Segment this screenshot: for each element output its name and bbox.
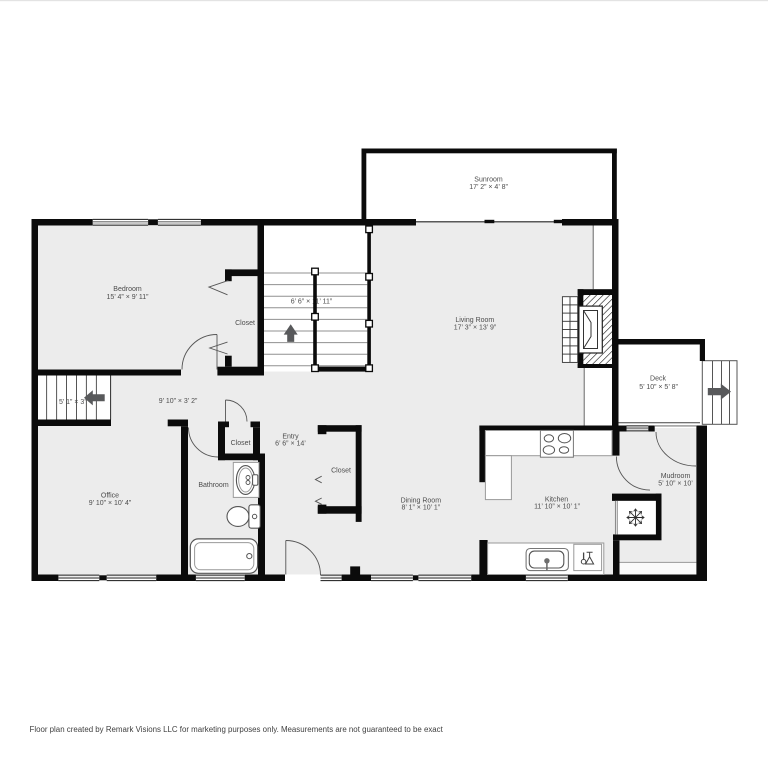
svg-text:17’ 3” × 13’ 9”: 17’ 3” × 13’ 9” <box>454 325 497 332</box>
svg-text:17’ 2” × 4’ 8”: 17’ 2” × 4’ 8” <box>469 184 508 191</box>
svg-text:Closet: Closet <box>331 468 351 475</box>
svg-text:Floor plan created by Remark V: Floor plan created by Remark Visions LLC… <box>30 725 444 734</box>
svg-text:9’ 10” × 3’ 2”: 9’ 10” × 3’ 2” <box>159 398 198 405</box>
svg-text:15’ 4” × 9’ 11”: 15’ 4” × 9’ 11” <box>107 294 150 301</box>
svg-text:Deck: Deck <box>650 376 666 383</box>
svg-text:6’ 6” × 14’: 6’ 6” × 14’ <box>275 440 306 447</box>
svg-text:6’ 6” × 11’ 11”: 6’ 6” × 11’ 11” <box>291 298 333 305</box>
svg-text:Closet: Closet <box>235 320 255 327</box>
svg-text:Office: Office <box>101 492 119 499</box>
svg-text:Closet: Closet <box>231 440 251 447</box>
svg-text:Mudroom: Mudroom <box>661 473 691 480</box>
svg-text:Bedroom: Bedroom <box>113 286 142 293</box>
svg-text:Dining Room: Dining Room <box>401 497 442 504</box>
svg-text:Living Room: Living Room <box>455 317 494 324</box>
svg-text:11’ 10” × 10’ 1”: 11’ 10” × 10’ 1” <box>534 504 581 511</box>
svg-text:Bathroom: Bathroom <box>198 482 229 489</box>
svg-text:5’ 10” × 10’: 5’ 10” × 10’ <box>658 480 693 487</box>
svg-text:5’ 1” × 3’: 5’ 1” × 3’ <box>59 399 86 406</box>
svg-text:8’ 1” × 10’ 1”: 8’ 1” × 10’ 1” <box>402 505 441 512</box>
svg-text:9’ 10” × 10’ 4”: 9’ 10” × 10’ 4” <box>89 500 132 507</box>
svg-text:5’ 10” × 5’ 8”: 5’ 10” × 5’ 8” <box>639 384 678 391</box>
svg-text:Sunroom: Sunroom <box>474 176 503 183</box>
